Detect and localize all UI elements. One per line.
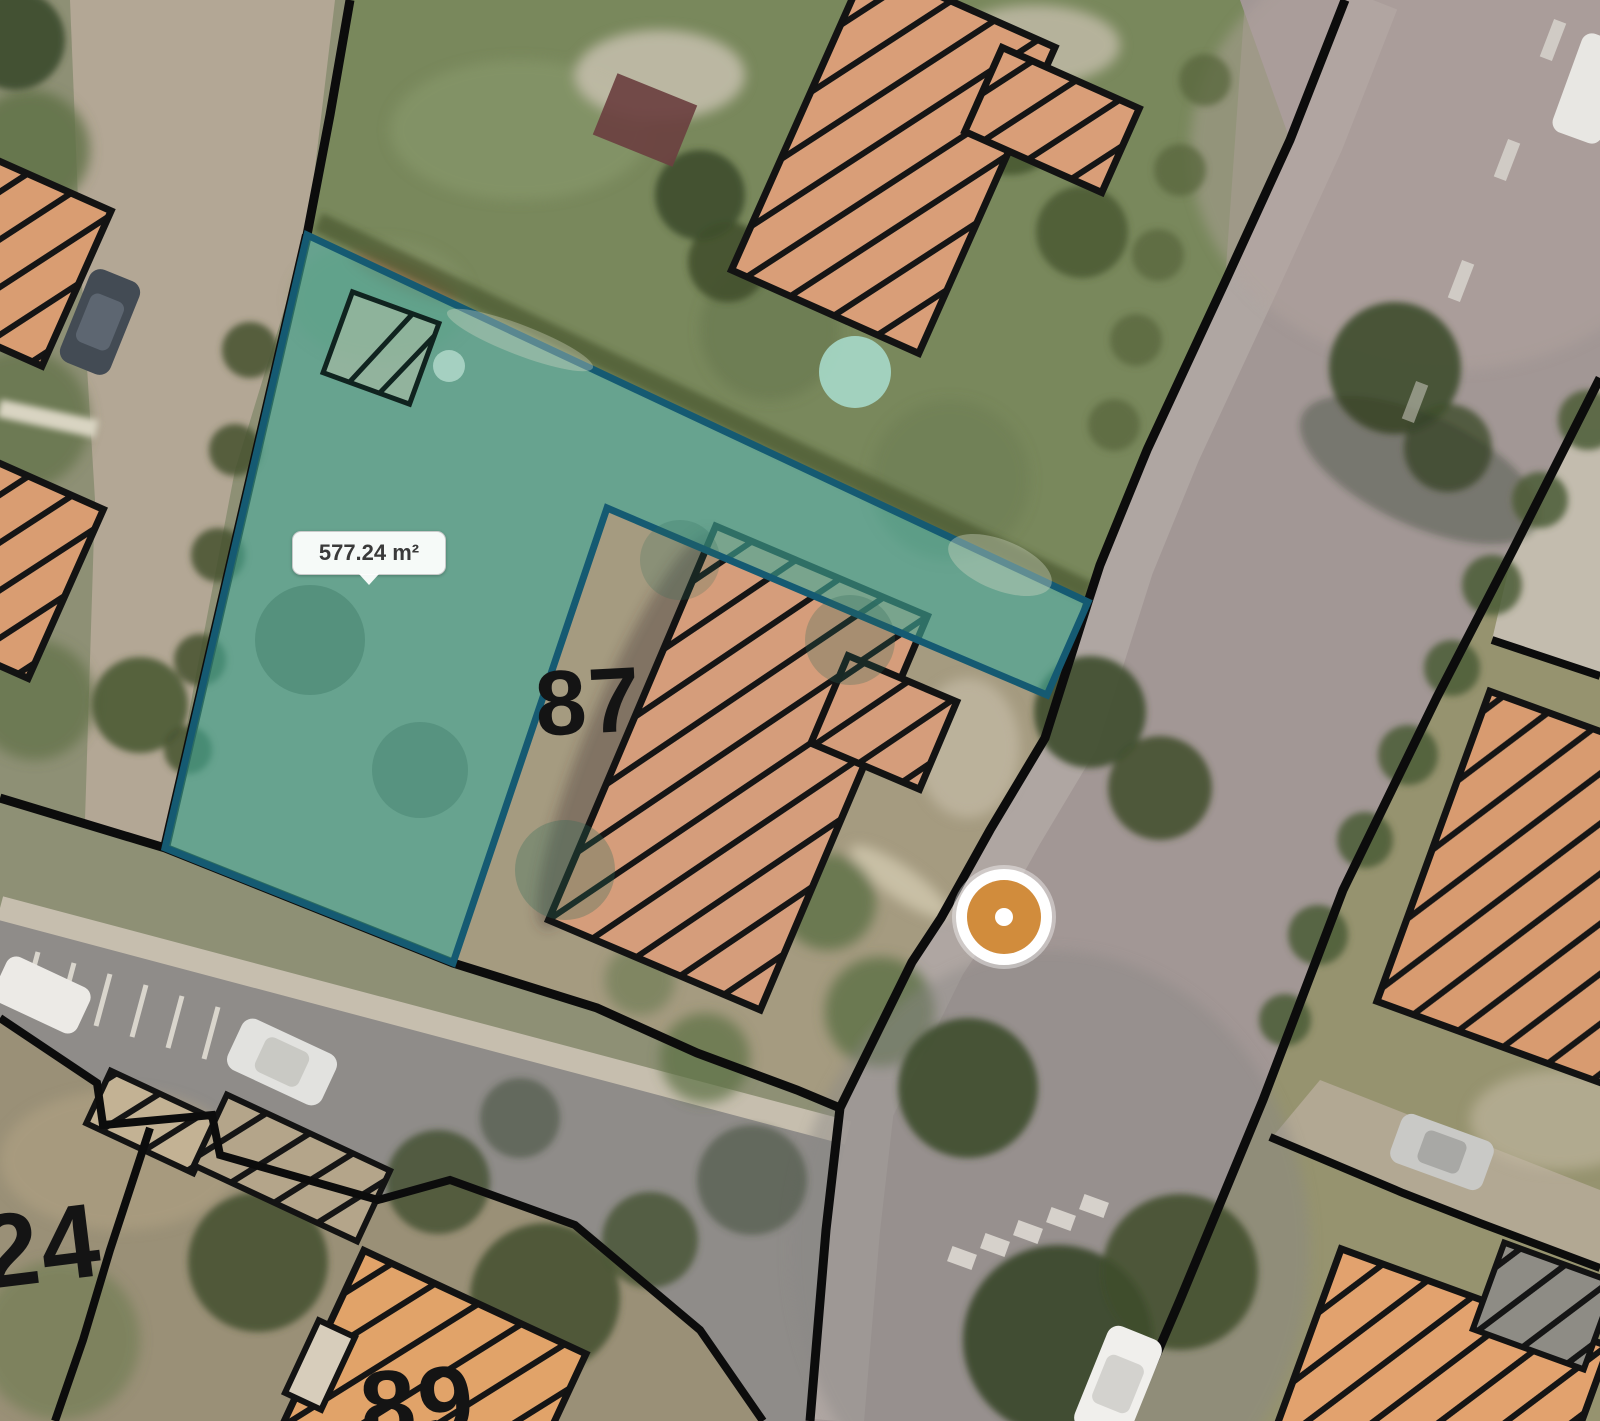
parcel-label-24: 24 xyxy=(0,1181,108,1312)
area-tooltip-text: 577.24 m² xyxy=(319,540,419,566)
parcel-label-89: 89 xyxy=(356,1344,479,1421)
marker-center-dot xyxy=(995,908,1013,926)
location-marker[interactable] xyxy=(952,865,1056,969)
area-tooltip: 577.24 m² xyxy=(292,531,446,575)
small-pale-circle xyxy=(433,350,465,382)
aerial-basemap: 87 24 89 xyxy=(0,0,1600,1421)
map-canvas[interactable]: 87 24 89 577.24 m² xyxy=(0,0,1600,1421)
pool-circle xyxy=(819,336,891,408)
parcel-label-87: 87 xyxy=(533,648,645,755)
tooltip-pointer xyxy=(359,574,379,585)
